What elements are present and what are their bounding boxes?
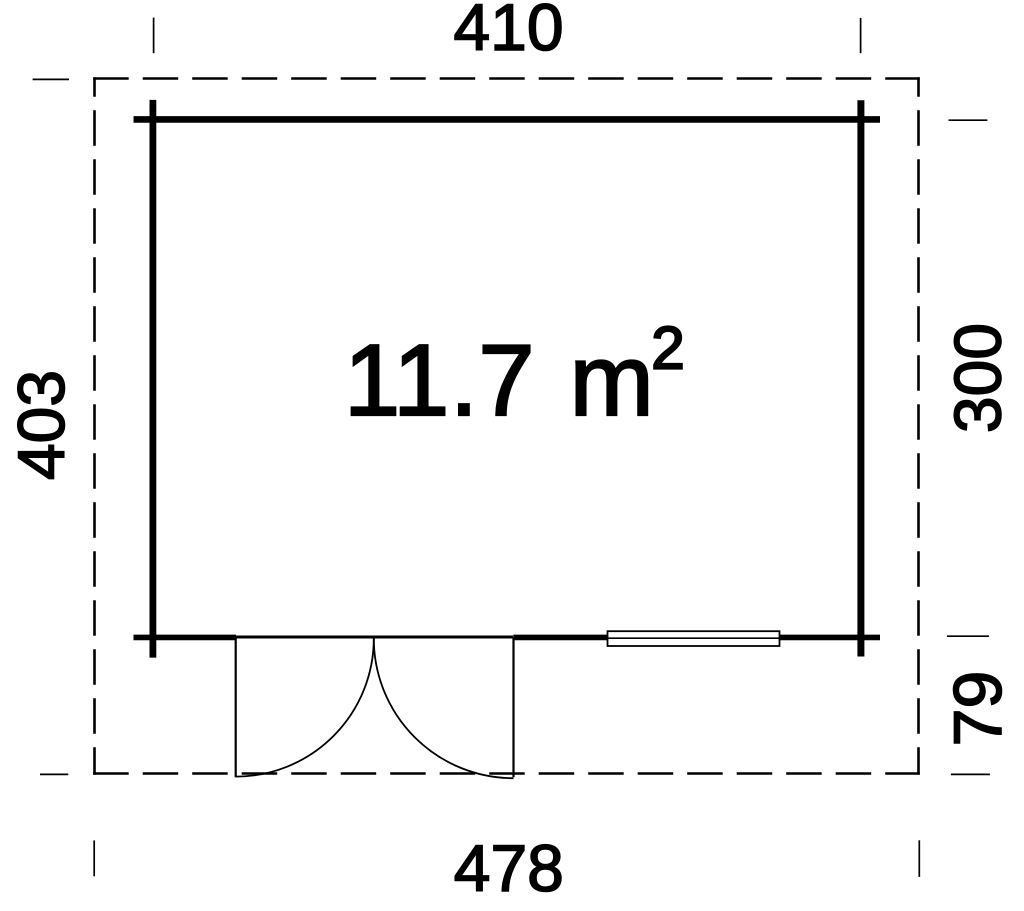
svg-text:478: 478 [454, 831, 564, 905]
svg-text:11.7 m2: 11.7 m2 [344, 315, 685, 438]
svg-text:410: 410 [453, 0, 563, 64]
svg-text:79: 79 [940, 671, 1016, 747]
svg-text:403: 403 [4, 370, 78, 480]
svg-text:300: 300 [940, 323, 1014, 433]
